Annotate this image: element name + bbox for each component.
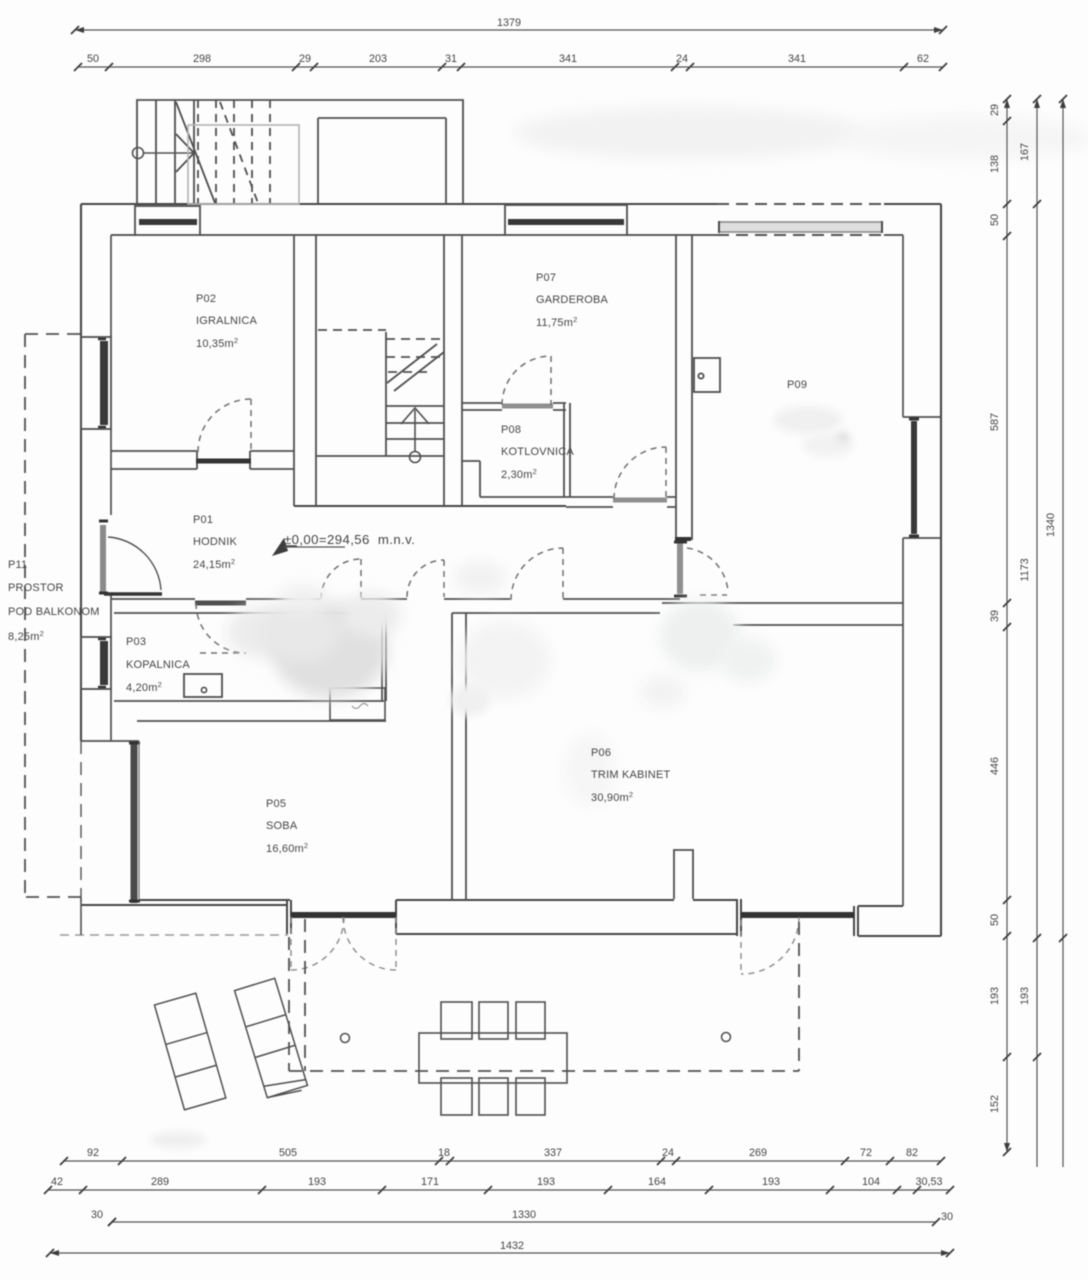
svg-text:193: 193 [537,1176,555,1188]
svg-text:10,35m2: 10,35m2 [196,336,238,350]
svg-text:31: 31 [445,53,457,65]
svg-text:29: 29 [989,104,1001,116]
svg-text:167: 167 [1019,143,1031,161]
svg-text:P08: P08 [501,424,521,436]
svg-text:HODNIK: HODNIK [193,536,237,548]
svg-text:P09: P09 [787,379,807,391]
svg-text:341: 341 [559,53,577,65]
svg-text:1173: 1173 [1019,558,1031,581]
svg-text:8,25m2: 8,25m2 [8,629,44,643]
svg-text:24,15m2: 24,15m2 [193,557,235,571]
svg-text:289: 289 [151,1176,169,1188]
svg-text:193: 193 [762,1176,780,1188]
svg-text:152: 152 [989,1095,1001,1113]
svg-text:50: 50 [989,214,1001,226]
svg-text:30: 30 [91,1209,103,1221]
svg-text:SOBA: SOBA [266,820,298,832]
svg-text:50: 50 [989,914,1001,926]
svg-text:171: 171 [421,1176,439,1188]
svg-text:2,30m2: 2,30m2 [501,467,537,481]
svg-text:82: 82 [906,1147,918,1159]
svg-text:24: 24 [676,53,688,65]
svg-text:164: 164 [648,1176,666,1188]
svg-text:269: 269 [749,1147,767,1159]
svg-text:39: 39 [989,610,1001,622]
svg-text:341: 341 [788,53,806,65]
svg-text:P11: P11 [8,559,27,571]
svg-text:42: 42 [51,1176,63,1188]
svg-text:203: 203 [369,53,387,65]
svg-text:IGRALNICA: IGRALNICA [196,315,258,327]
svg-text:1432: 1432 [500,1240,524,1252]
svg-text:104: 104 [862,1176,880,1188]
svg-text:PROSTOR: PROSTOR [8,582,64,594]
svg-text:P05: P05 [266,798,286,810]
svg-text:KOTLOVNICA: KOTLOVNICA [501,446,574,458]
svg-text:18: 18 [438,1147,450,1159]
svg-text:TRIM KABINET: TRIM KABINET [591,769,670,781]
svg-text:193: 193 [1019,987,1031,1005]
svg-text:587: 587 [989,413,1001,431]
svg-text:1330: 1330 [512,1209,536,1221]
svg-text:193: 193 [308,1176,326,1188]
svg-text:138: 138 [989,155,1001,173]
svg-text:24: 24 [662,1147,674,1159]
svg-text:446: 446 [989,757,1001,775]
svg-text:±0,00=294,56 m.n.v.: ±0,00=294,56 m.n.v. [284,532,415,547]
svg-text:298: 298 [193,53,211,65]
svg-text:P07: P07 [536,272,556,284]
svg-text:P01: P01 [193,514,213,526]
svg-text:30,53: 30,53 [915,1176,942,1188]
svg-text:1379: 1379 [497,17,521,29]
svg-text:16,60m2: 16,60m2 [266,841,308,855]
svg-text:11,75m2: 11,75m2 [536,315,577,329]
svg-text:POD BALKONOM: POD BALKONOM [8,606,100,618]
svg-text:30: 30 [941,1211,953,1223]
svg-text:4,20m2: 4,20m2 [126,680,162,694]
svg-text:KOPALNICA: KOPALNICA [126,659,190,671]
svg-text:GARDEROBA: GARDEROBA [536,294,609,306]
svg-text:1340: 1340 [1045,513,1057,537]
svg-text:92: 92 [87,1147,99,1159]
svg-text:50: 50 [87,53,99,65]
svg-text:62: 62 [917,53,929,65]
svg-text:505: 505 [279,1147,297,1159]
svg-text:29: 29 [299,53,311,65]
svg-text:193: 193 [989,987,1001,1005]
svg-text:30,90m2: 30,90m2 [591,790,633,804]
svg-text:72: 72 [860,1147,872,1159]
svg-text:337: 337 [544,1147,562,1159]
svg-text:P02: P02 [196,293,216,305]
svg-text:P03: P03 [126,636,146,648]
svg-text:P06: P06 [591,747,611,759]
